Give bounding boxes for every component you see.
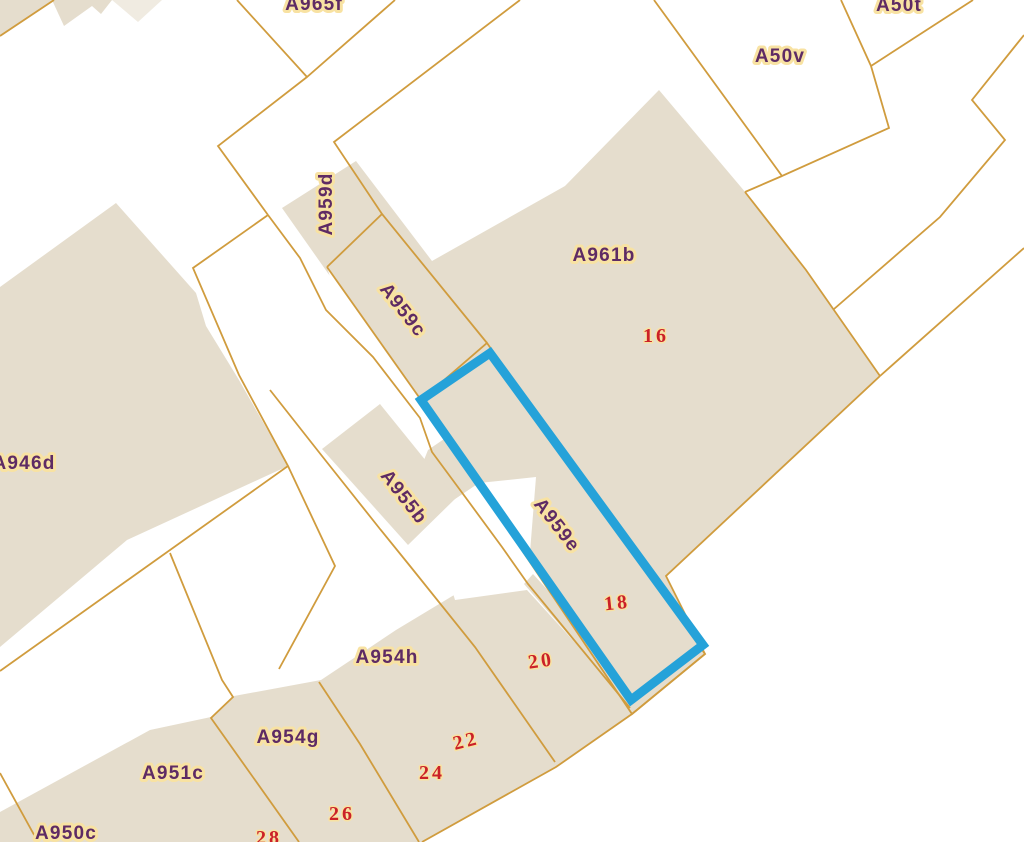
svg-text:A954g: A954g	[256, 727, 319, 748]
svg-text:A50t: A50t	[876, 0, 922, 16]
svg-text:26: 26	[329, 803, 355, 825]
svg-text:24: 24	[419, 762, 445, 784]
svg-text:A965f: A965f	[285, 0, 343, 15]
svg-text:20: 20	[527, 648, 556, 673]
svg-text:A946d: A946d	[0, 453, 56, 474]
svg-text:A961b: A961b	[572, 245, 635, 266]
svg-text:A50v: A50v	[755, 46, 805, 67]
svg-text:28: 28	[256, 827, 282, 842]
svg-text:A959d: A959d	[316, 172, 337, 235]
svg-text:A951c: A951c	[142, 763, 204, 784]
svg-text:A950c: A950c	[35, 823, 97, 842]
svg-text:16: 16	[643, 325, 669, 347]
svg-text:A954h: A954h	[355, 647, 418, 668]
svg-text:18: 18	[603, 591, 631, 616]
